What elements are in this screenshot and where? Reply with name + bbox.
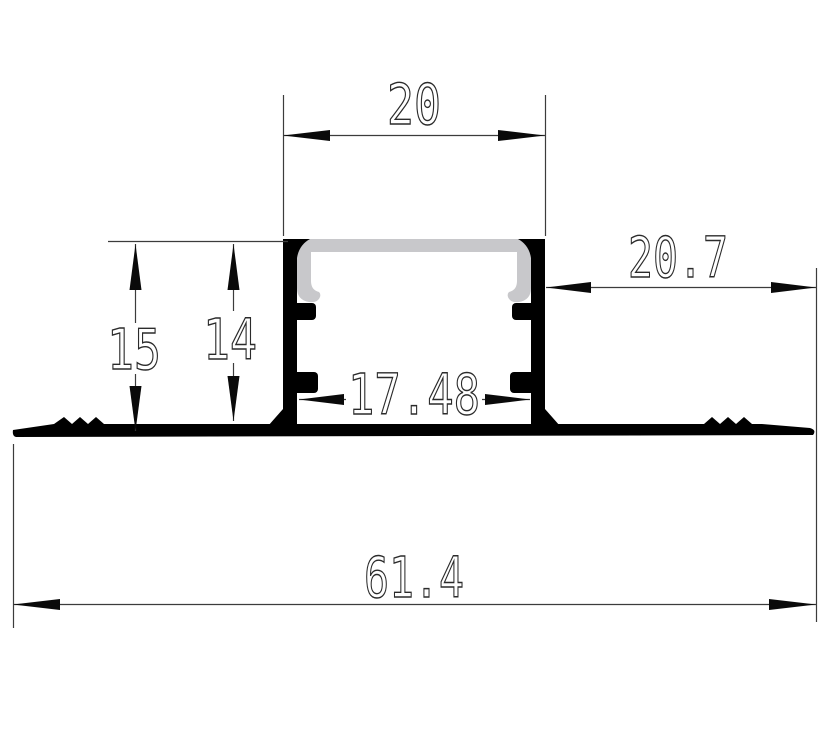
left-wall: [283, 239, 297, 426]
right-lower-tooth: [510, 372, 536, 393]
arrow-right-icon: [498, 130, 545, 141]
arrow-up-icon: [228, 244, 240, 290]
dim-right-flange-label: 20.7: [628, 226, 728, 291]
dim-outer-height-label: 15: [107, 318, 161, 383]
arrow-left-icon: [299, 394, 344, 405]
arrow-right-icon: [769, 599, 816, 610]
right-fillet: [545, 409, 560, 426]
right-upper-tooth: [512, 303, 536, 320]
arrow-left-icon: [13, 599, 60, 610]
dim-right-flange: 20.7: [546, 226, 816, 293]
arrow-left-icon: [283, 130, 330, 141]
left-upper-tooth: [292, 303, 316, 320]
diffuser-right-leg: [508, 250, 531, 302]
dim-total-width-label: 61.4: [364, 546, 464, 611]
arrow-right-icon: [485, 394, 530, 405]
arrow-left-icon: [546, 282, 591, 293]
dim-inner-width-label: 17.48: [348, 363, 480, 428]
dim-top-width: 20: [283, 73, 546, 236]
diffuser-cover: [291, 239, 535, 302]
profile-cross-section-drawing: 20 15 14 17.48: [0, 0, 826, 750]
diffuser-left-leg: [297, 250, 320, 302]
left-fillet: [268, 409, 283, 426]
left-lower-tooth: [292, 372, 318, 393]
arrow-up-icon: [130, 244, 142, 290]
dim-inner-height-label: 14: [203, 308, 257, 373]
dim-left-heights: 15 14: [107, 242, 288, 432]
diffuser-top-plate: [291, 239, 535, 252]
arrow-down-icon: [228, 376, 240, 421]
right-wall: [531, 239, 545, 426]
arrow-right-icon: [771, 282, 816, 293]
dim-top-width-label: 20: [387, 73, 441, 138]
drawing-canvas: 20 15 14 17.48: [0, 0, 826, 750]
dim-inner-width: 17.48: [299, 363, 530, 428]
